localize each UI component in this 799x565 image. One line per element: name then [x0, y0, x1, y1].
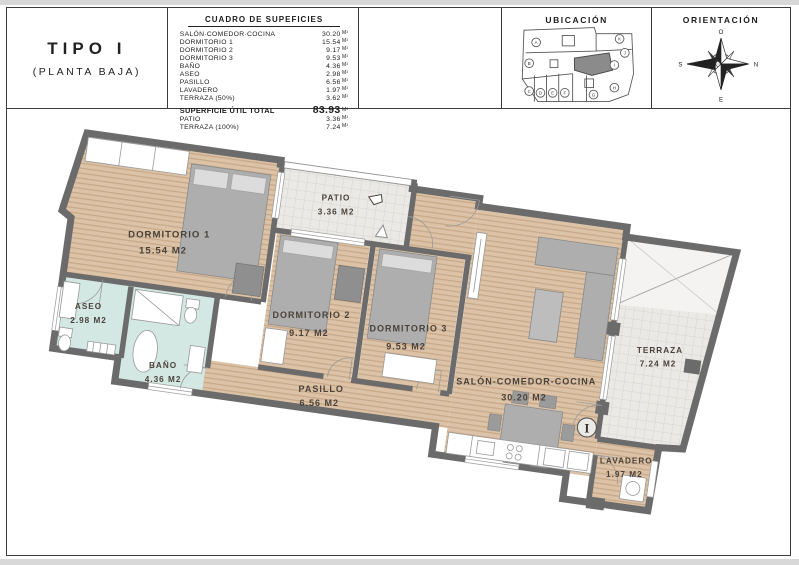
- cabinet-dorm1: [232, 263, 264, 297]
- svg-text:D: D: [539, 91, 542, 96]
- svg-text:9.17 m2: 9.17 m2: [289, 328, 329, 338]
- areas-table-row: PASILLO6.56m²: [180, 79, 349, 87]
- svg-text:I: I: [584, 420, 589, 435]
- room-label-salon: SALÓN-COMEDOR-COCINA: [456, 376, 596, 387]
- areas-table-row: DORMITORIO 29.17m²: [180, 47, 349, 55]
- svg-text:15.54 m2: 15.54 m2: [139, 245, 187, 256]
- room-label-terraza: TERRAZA: [637, 346, 683, 355]
- svg-text:C: C: [527, 89, 530, 94]
- room-label-bano: BAÑO: [149, 360, 177, 370]
- scan-edge-top: [0, 0, 799, 5]
- location-map: A B C D E F G H I J K: [503, 25, 651, 105]
- sheet-frame: TIPO I (PLANTA BAJA) CUADRO DE SUPEFICIE…: [6, 7, 791, 556]
- areas-table: CUADRO DE SUPEFICIES SALÓN·COMEDOR·COCIN…: [168, 8, 360, 108]
- blank-panel: [359, 8, 502, 108]
- svg-text:9.53 m2: 9.53 m2: [386, 341, 426, 351]
- svg-text:B: B: [527, 61, 530, 66]
- room-label-aseo: ASEO: [75, 302, 102, 311]
- type-title-block: TIPO I (PLANTA BAJA): [7, 8, 168, 108]
- plan-sheet: TIPO I (PLANTA BAJA) CUADRO DE SUPEFICIE…: [0, 0, 799, 565]
- location-title: UBICACIÓN: [502, 15, 651, 25]
- plan-area: I DORMITORIO 1 15.54 m2 PATIO 3.36 m2 AS…: [7, 109, 790, 554]
- orientation-title: ORIENTACIÓN: [652, 15, 790, 25]
- room-label-dormitorio-1: DORMITORIO 1: [128, 229, 210, 240]
- svg-text:O: O: [719, 29, 724, 36]
- areas-table-title: CUADRO DE SUPEFICIES: [188, 15, 341, 27]
- svg-text:S: S: [678, 61, 682, 68]
- areas-table-row: TERRAZA (50%)3.62m²: [180, 95, 349, 103]
- svg-text:E: E: [719, 96, 723, 103]
- areas-table-row: LAVADERO1.97m²: [180, 87, 349, 95]
- floor-plan: I DORMITORIO 1 15.54 m2 PATIO 3.36 m2 AS…: [7, 109, 790, 554]
- location-panel: UBICACIÓN A B C D: [502, 8, 652, 108]
- svg-text:J: J: [623, 51, 625, 56]
- svg-text:2.98 m2: 2.98 m2: [70, 316, 107, 325]
- areas-table-row: DORMITORIO 39.53m²: [180, 55, 349, 63]
- svg-text:I: I: [613, 63, 614, 68]
- room-label-lavadero: LAVADERO: [600, 456, 653, 465]
- svg-text:K: K: [618, 37, 621, 42]
- svg-text:1.97 m2: 1.97 m2: [606, 470, 643, 479]
- room-label-pasillo: PASILLO: [299, 384, 344, 394]
- svg-text:N: N: [754, 61, 758, 68]
- compass-rose-icon: O N E S: [652, 25, 790, 103]
- svg-text:7.24 m2: 7.24 m2: [640, 360, 677, 369]
- areas-table-row: ASEO2.98m²: [180, 71, 349, 79]
- room-label-dormitorio-3: DORMITORIO 3: [370, 324, 448, 334]
- room-label-patio: PATIO: [322, 194, 351, 203]
- title-band: TIPO I (PLANTA BAJA) CUADRO DE SUPEFICIE…: [7, 8, 790, 109]
- floor-label: (PLANTA BAJA): [33, 66, 141, 78]
- svg-text:4.36 m2: 4.36 m2: [145, 375, 182, 384]
- svg-text:3.36 m2: 3.36 m2: [318, 207, 355, 216]
- svg-text:A: A: [534, 40, 537, 45]
- room-label-dormitorio-2: DORMITORIO 2: [273, 310, 351, 320]
- svg-text:6.56 m2: 6.56 m2: [300, 398, 340, 408]
- areas-table-row: BAÑO4.36m²: [180, 63, 349, 71]
- svg-text:30.20 m2: 30.20 m2: [501, 392, 547, 402]
- orientation-panel: ORIENTACIÓN: [652, 8, 790, 108]
- type-label: TIPO I: [47, 39, 126, 59]
- areas-table-row: DORMITORIO 115.54m²: [180, 39, 349, 47]
- scan-edge-bottom: [0, 559, 799, 565]
- svg-text:E: E: [551, 91, 554, 96]
- svg-text:H: H: [612, 85, 615, 90]
- svg-text:F: F: [563, 91, 566, 96]
- areas-table-row: SALÓN·COMEDOR·COCINA30.20m²: [180, 31, 349, 39]
